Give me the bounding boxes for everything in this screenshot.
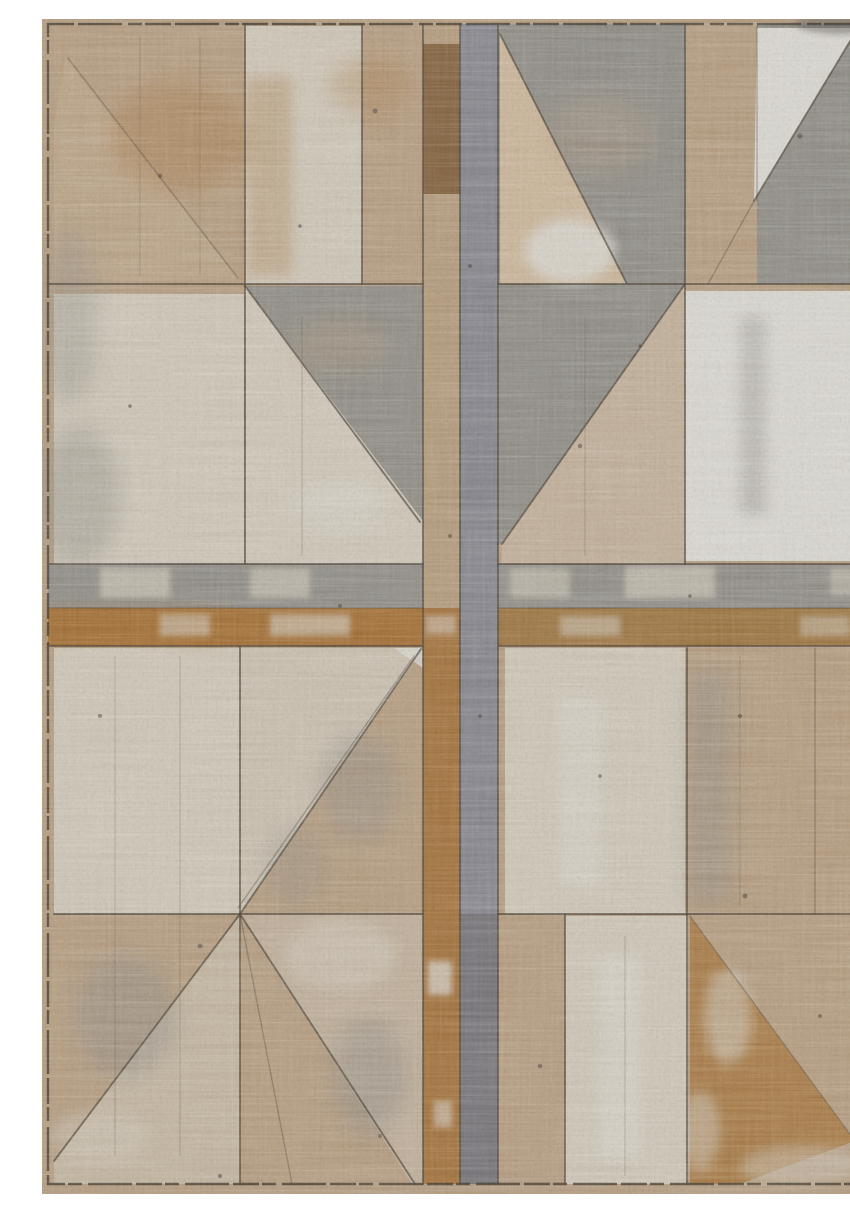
rug-illustration [40,16,850,1198]
texture-overlays [42,19,850,1195]
grain-texture [42,19,850,1195]
rug-product-photo: Distressed geometric patchwork area rug [40,16,850,1198]
